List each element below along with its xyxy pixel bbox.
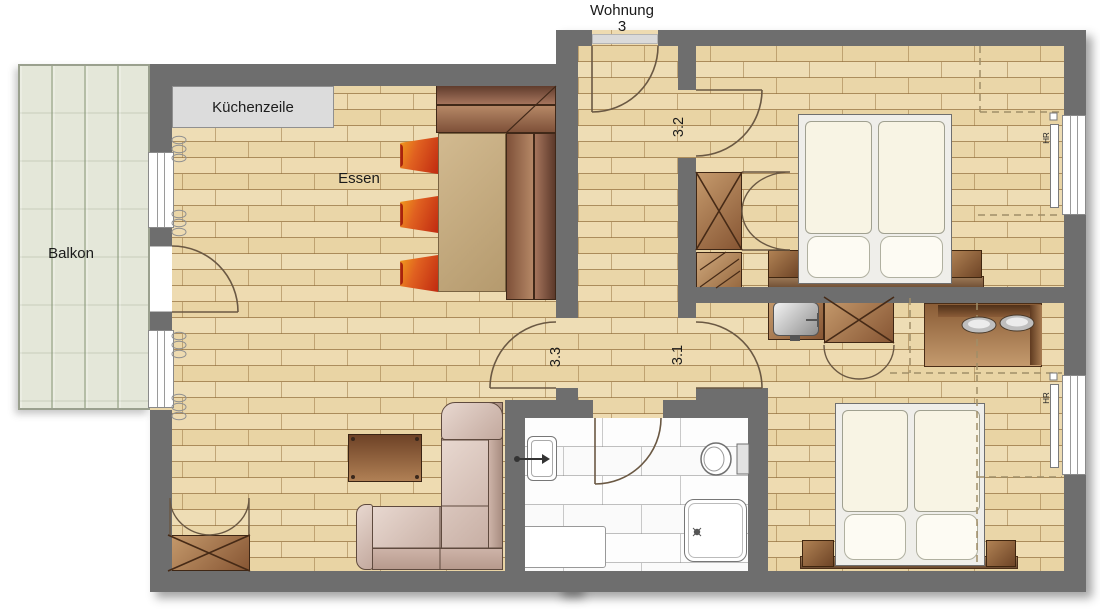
dresser-side-panel [1030,305,1042,365]
wall-right-2 [1064,215,1086,375]
wardrobe-living [168,535,250,571]
washing-machine [518,526,606,568]
dining-table [438,133,506,292]
plan-title-line1: Wohnung [552,3,692,19]
nightstand-31-left [802,540,834,567]
radiator-label-31: HR [1042,386,1054,410]
door-label-31: 3.1 [670,337,700,373]
wardrobe-bedroom-31 [824,297,894,343]
room-balcony [18,64,150,410]
dresser-back-panel [938,305,1034,317]
corner-bench-back-right [534,133,556,300]
window-pane [1070,116,1078,214]
balcony-door-opening [150,246,172,312]
window-bedroom-32 [1062,115,1086,215]
nightstand-31-right [986,540,1016,567]
plan-title-line2: 3 [552,19,692,35]
pillow [807,236,870,278]
window-pane [157,331,166,407]
sofa-armrest-left [356,504,373,570]
mattress [842,410,908,512]
wall-left-4 [150,410,172,592]
wall-left-2 [150,228,172,246]
mattress [914,410,980,512]
entrance-threshold [592,34,658,44]
wall-hall-bedroom-upper [678,46,696,90]
kitchen-unit-label: Küchenzeile [212,99,294,116]
corner-bench-back-top [436,84,556,105]
wall-living-hall-upper [556,46,578,318]
mattress [805,121,872,234]
shower-inner-edge [688,503,743,558]
wardrobe-bedroom-32 [696,172,742,250]
dining-label: Essen [326,170,392,187]
nightstand-32-right [950,250,982,278]
mattress [878,121,945,234]
wall-bedroom-divider [678,287,1066,303]
window-balcony-1 [148,152,174,228]
pillow [916,514,978,560]
wall-bottom [150,571,1086,592]
pillow [880,236,943,278]
wall-bathroom-top-left [505,400,593,418]
floor-plan: Küchenzeile [0,0,1100,610]
corner-bench-seat-right [506,133,534,300]
room-hallway [578,46,678,400]
plan-title: Wohnung 3 [552,3,692,35]
shelf-cabinet-bedroom-32 [696,252,742,290]
door-label-33: 3.3 [548,339,578,375]
window-bedroom-31 [1062,375,1086,475]
coffee-table [348,434,422,482]
bathroom-sink [527,436,557,481]
nightstand-32-left [768,250,800,278]
sink-basin [531,440,553,477]
kitchen-unit: Küchenzeile [172,86,334,128]
shower-tray [684,499,747,562]
radiator-label-32: HR [1042,126,1054,150]
wall-living-bathroom [505,418,525,571]
washbasin-31 [773,302,819,336]
door-label-32: 3.2 [671,109,701,145]
balcony-label: Balkon [36,245,106,262]
wall-bathroom-bedroom [748,418,768,571]
wall-hall-bedroom31-jog [696,388,768,402]
wall-top-left [150,64,578,86]
window-balcony-2 [148,330,174,408]
wall-right-1 [1064,30,1086,115]
wall-bathroom-top-right [663,400,768,418]
exterior-mask [150,30,556,64]
pillow [844,514,906,560]
window-pane [1070,376,1078,474]
sofa-back-bottom [372,548,503,570]
window-pane [157,153,166,227]
sofa-armrest-top [441,402,503,440]
corner-bench-seat-top [436,105,556,133]
wall-top-right [658,30,1086,46]
wall-left-1 [150,64,172,152]
wall-left-3 [150,312,172,330]
